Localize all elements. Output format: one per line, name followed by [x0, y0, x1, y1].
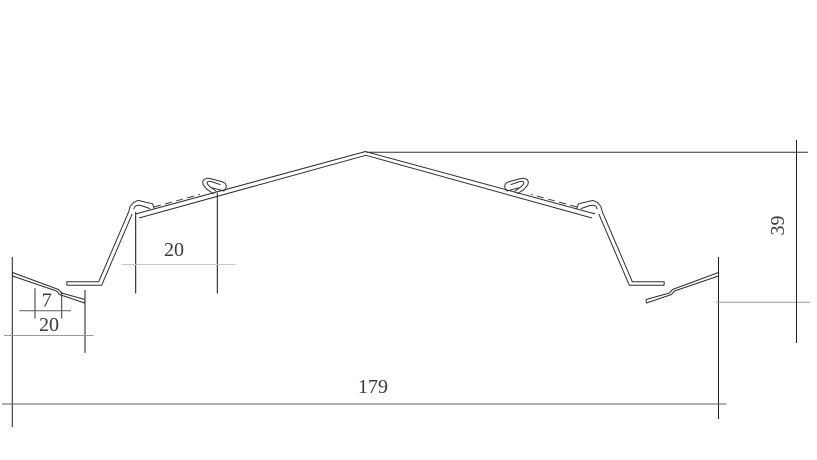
slope-lower-edge	[139, 155, 592, 218]
drawing-svg: 20 7 20 179 39	[0, 0, 817, 460]
dim-label-slope-pitch: 20	[164, 239, 184, 261]
hidden-overlap-edge	[154, 194, 200, 207]
hook-inner	[134, 205, 150, 209]
dimension-labels: 20 7 20 179 39	[39, 216, 789, 399]
drawing-canvas: 20 7 20 179 39	[0, 0, 817, 460]
flange-riser-inner	[67, 214, 133, 285]
hidden-overlap-edge-mirrored	[531, 194, 577, 207]
mid-clip-outer-mirrored	[505, 178, 529, 194]
dim-label-eave-lip: 7	[42, 290, 52, 312]
flange-riser-inner-mirrored	[599, 214, 665, 285]
dim-label-overall-height: 39	[767, 216, 789, 236]
dim-label-eave-tab: 20	[39, 314, 59, 336]
profile-geometry	[13, 152, 719, 304]
dim-label-overall-width: 179	[358, 376, 388, 398]
hook-inner-mirrored	[581, 205, 597, 209]
eave-tab-mirrored	[646, 273, 719, 304]
slope-upper-edge	[136, 152, 595, 214]
mid-clip-outer	[203, 178, 227, 194]
